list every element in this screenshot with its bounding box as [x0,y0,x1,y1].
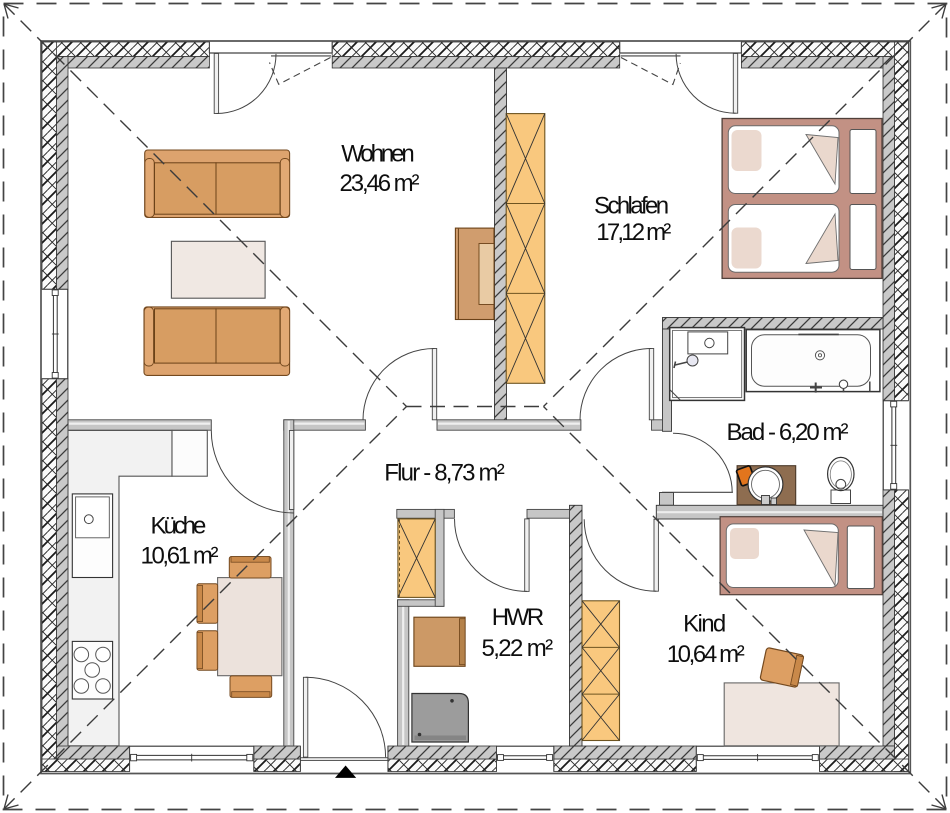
svg-text:Flur - 8,73 m²: Flur - 8,73 m² [384,460,504,487]
svg-text:HWR: HWR [492,604,545,631]
svg-text:10,64 m²: 10,64 m² [667,641,745,668]
svg-text:17,12 m²: 17,12 m² [596,219,671,246]
svg-text:Bad - 6,20 m²: Bad - 6,20 m² [726,419,848,446]
svg-text:Schlafen: Schlafen [594,192,669,219]
svg-text:10,61 m²: 10,61 m² [141,542,219,569]
svg-text:23,46 m²: 23,46 m² [340,170,420,197]
svg-text:Wohnen: Wohnen [341,141,415,168]
svg-text:Kind: Kind [683,610,726,637]
svg-text:5,22 m²: 5,22 m² [481,635,553,662]
svg-text:Küche: Küche [151,512,207,539]
